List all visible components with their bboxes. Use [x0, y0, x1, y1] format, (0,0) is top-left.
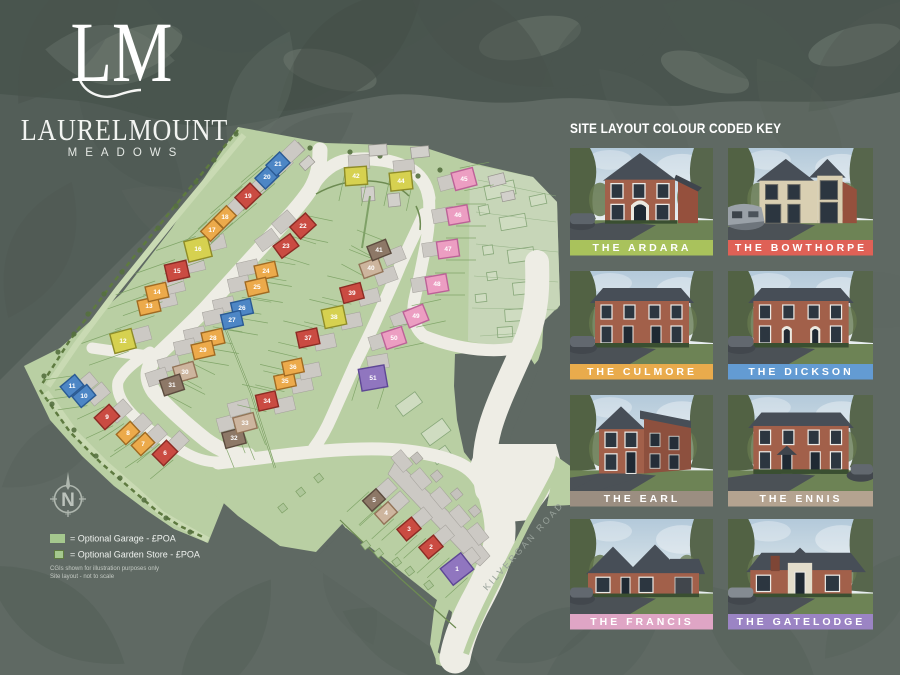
svg-text:34: 34: [263, 398, 271, 405]
svg-text:12: 12: [119, 338, 127, 345]
svg-text:22: 22: [299, 223, 307, 230]
svg-text:50: 50: [390, 335, 398, 342]
svg-text:28: 28: [209, 335, 217, 342]
svg-text:37: 37: [304, 335, 312, 342]
svg-text:19: 19: [244, 193, 252, 200]
svg-text:47: 47: [444, 246, 452, 253]
svg-text:23: 23: [282, 243, 290, 250]
svg-text:30: 30: [181, 369, 189, 376]
svg-text:THE EARL: THE EARL: [604, 493, 681, 505]
svg-text:24: 24: [262, 268, 270, 275]
svg-text:N: N: [61, 490, 75, 511]
svg-text:6: 6: [163, 450, 167, 457]
svg-text:21: 21: [274, 161, 282, 168]
svg-text:36: 36: [289, 364, 297, 371]
svg-text:THE ARDARA: THE ARDARA: [592, 242, 691, 254]
svg-text:38: 38: [330, 314, 338, 321]
svg-text:10: 10: [80, 393, 88, 400]
svg-text:26: 26: [238, 305, 246, 312]
svg-text:41: 41: [375, 247, 383, 254]
svg-text:27: 27: [228, 317, 236, 324]
svg-text:40: 40: [367, 265, 375, 272]
svg-text:3: 3: [407, 526, 411, 533]
svg-text:48: 48: [433, 281, 441, 288]
svg-text:THE DICKSON: THE DICKSON: [748, 366, 853, 378]
svg-text:16: 16: [194, 246, 202, 253]
svg-text:25: 25: [253, 284, 261, 291]
svg-text:5: 5: [372, 497, 376, 504]
svg-text:THE FRANCIS: THE FRANCIS: [590, 616, 694, 628]
svg-text:THE ENNIS: THE ENNIS: [759, 493, 842, 505]
svg-text:15: 15: [173, 268, 181, 275]
svg-text:THE GATELODGE: THE GATELODGE: [737, 616, 866, 628]
svg-text:51: 51: [369, 375, 377, 382]
svg-text:4: 4: [384, 510, 388, 517]
svg-text:7: 7: [141, 441, 145, 448]
svg-text:17: 17: [208, 227, 216, 234]
svg-text:31: 31: [168, 382, 176, 389]
svg-text:13: 13: [145, 303, 153, 310]
svg-text:11: 11: [69, 383, 76, 390]
svg-text:44: 44: [397, 178, 405, 185]
svg-text:THE BOWTHORPE: THE BOWTHORPE: [735, 242, 867, 254]
svg-text:18: 18: [221, 214, 229, 221]
svg-text:42: 42: [352, 173, 360, 180]
svg-text:2: 2: [429, 544, 433, 551]
svg-text:8: 8: [126, 430, 130, 437]
svg-text:33: 33: [241, 420, 249, 427]
svg-text:9: 9: [105, 414, 109, 421]
svg-text:20: 20: [263, 174, 271, 181]
svg-text:49: 49: [412, 313, 420, 320]
svg-text:THE CULMORE: THE CULMORE: [587, 366, 697, 378]
svg-text:29: 29: [199, 347, 207, 354]
svg-text:45: 45: [460, 176, 468, 183]
svg-text:39: 39: [348, 290, 356, 297]
svg-text:46: 46: [454, 212, 462, 219]
svg-text:1: 1: [455, 566, 459, 573]
svg-text:14: 14: [153, 289, 161, 296]
svg-text:35: 35: [281, 378, 289, 385]
svg-text:32: 32: [230, 435, 238, 442]
